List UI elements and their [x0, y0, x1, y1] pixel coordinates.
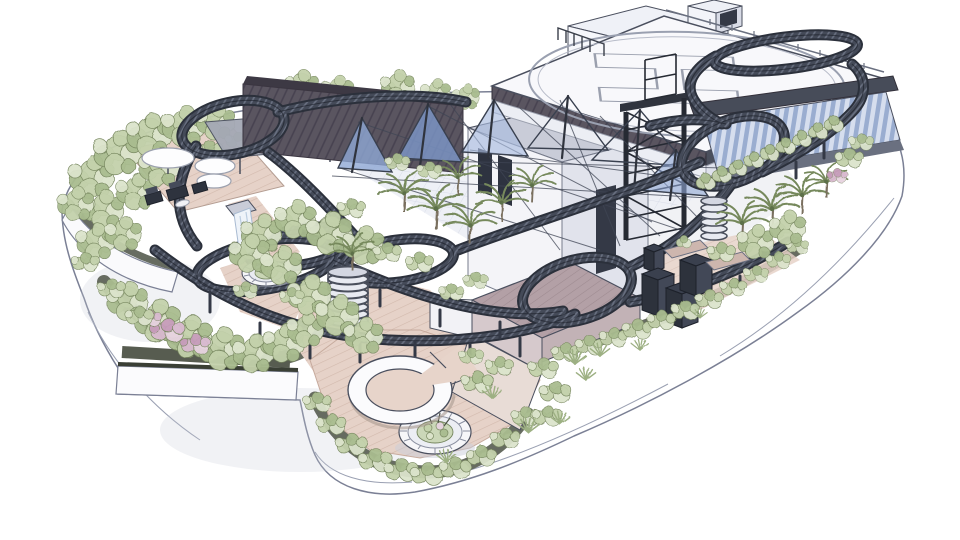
- illustration-canvas: H: [0, 0, 960, 540]
- rooftop-garden-sketch: H: [0, 0, 960, 540]
- spiral-stair-small: [701, 197, 727, 240]
